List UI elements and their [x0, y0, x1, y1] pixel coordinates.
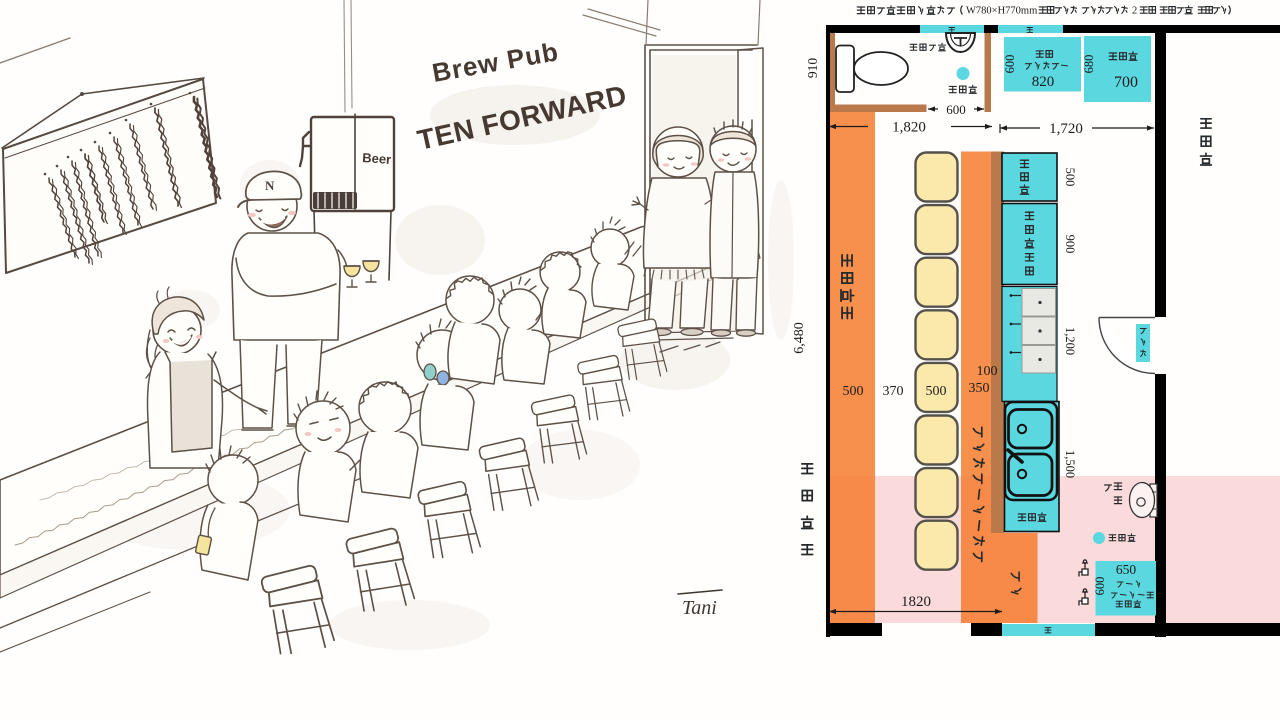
svg-text:1,820: 1,820: [892, 120, 926, 136]
svg-text:500: 500: [926, 384, 947, 399]
svg-text:500: 500: [843, 384, 864, 399]
svg-text:W780×H770mm: W780×H770mm: [966, 6, 1037, 17]
svg-text:600: 600: [1093, 577, 1107, 596]
svg-text:Tani: Tani: [682, 597, 717, 619]
svg-text:2: 2: [1132, 6, 1137, 17]
svg-text:350: 350: [969, 381, 990, 396]
svg-text:Beer: Beer: [362, 150, 392, 167]
svg-text:900: 900: [1063, 235, 1077, 254]
svg-text:680: 680: [1082, 55, 1096, 74]
svg-text:910: 910: [805, 58, 820, 79]
svg-text:370: 370: [883, 384, 904, 399]
svg-text:820: 820: [1032, 74, 1055, 90]
svg-text:6,480: 6,480: [792, 322, 807, 354]
svg-text:1,720: 1,720: [1049, 121, 1083, 137]
svg-text:N: N: [265, 178, 275, 193]
svg-text:1,500: 1,500: [1063, 450, 1077, 478]
svg-text:650: 650: [1116, 562, 1137, 577]
svg-text:600: 600: [1003, 55, 1017, 74]
svg-text:1,200: 1,200: [1063, 327, 1077, 355]
svg-text:600: 600: [946, 102, 966, 117]
svg-text:100: 100: [977, 364, 998, 379]
svg-text:500: 500: [1063, 168, 1077, 187]
svg-text:1820: 1820: [901, 594, 931, 610]
svg-text:700: 700: [1114, 74, 1138, 91]
